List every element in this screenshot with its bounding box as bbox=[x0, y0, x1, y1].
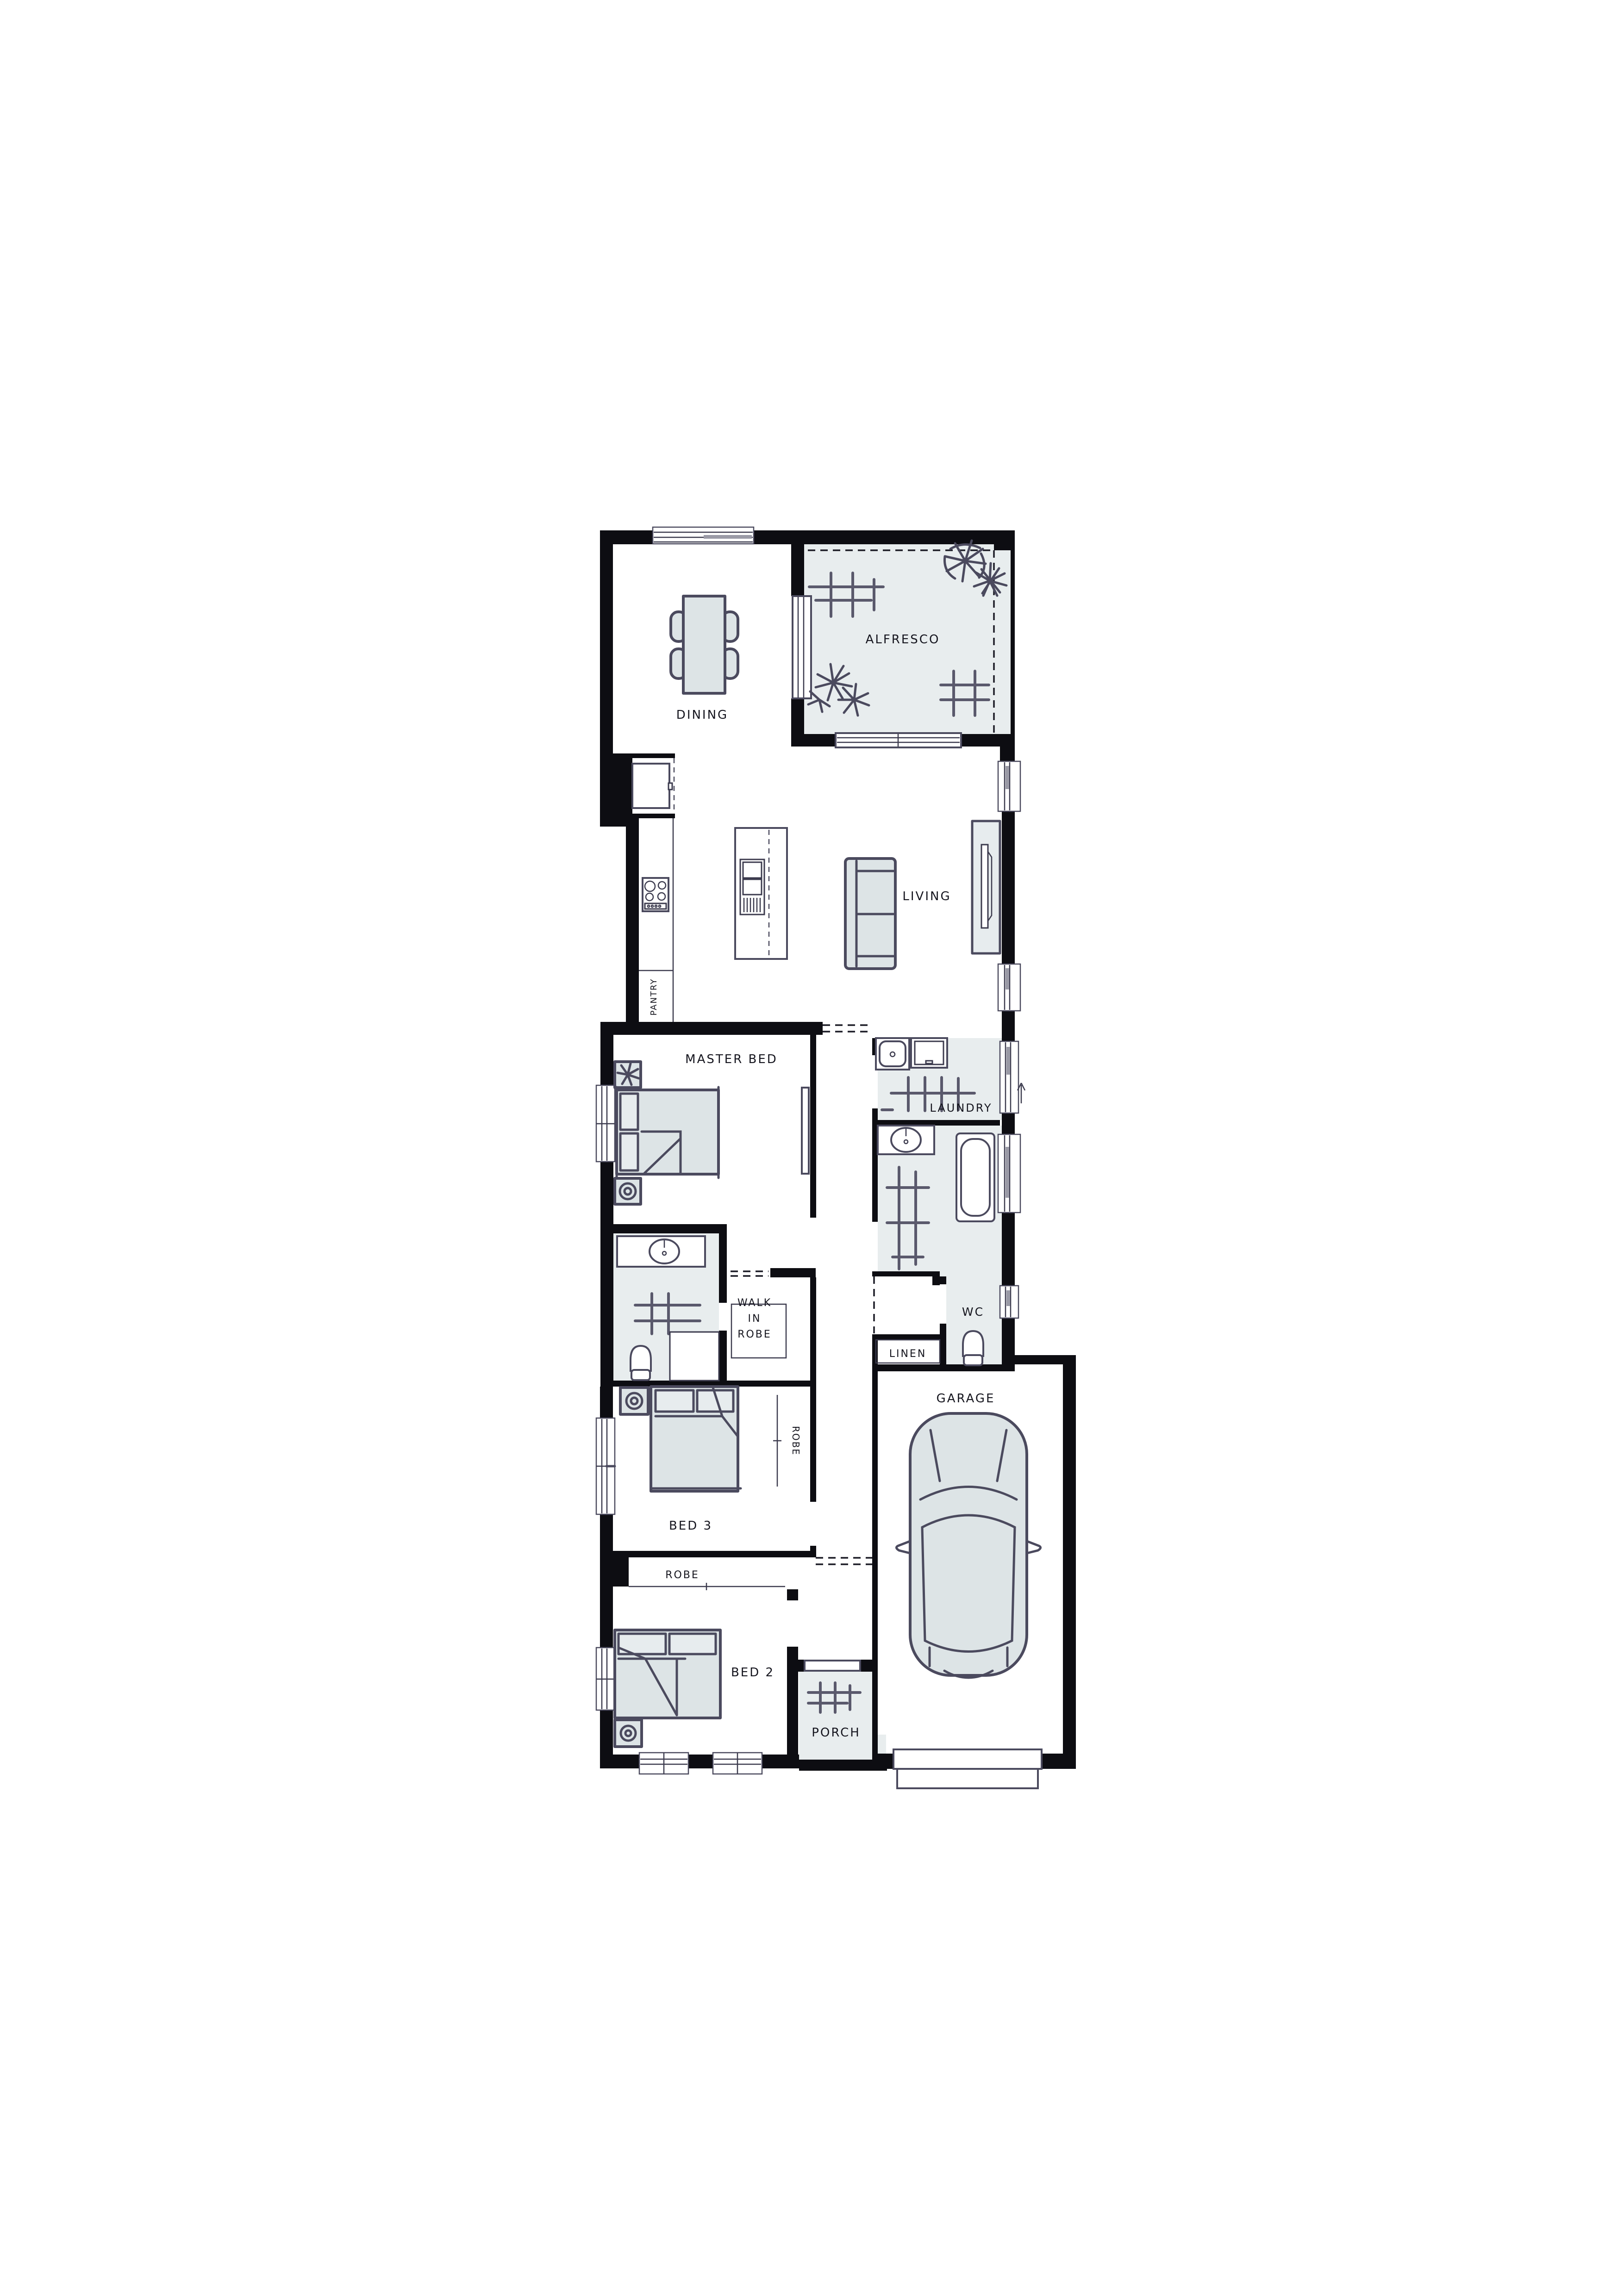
garage-car bbox=[896, 1413, 1040, 1678]
garage-door bbox=[893, 1749, 1042, 1788]
sofa bbox=[845, 859, 895, 969]
label-pantry: PANTRY bbox=[649, 978, 659, 1016]
entry-opening-dash bbox=[816, 1558, 872, 1564]
car-body bbox=[910, 1413, 1027, 1675]
master-furniture bbox=[615, 1062, 718, 1204]
bathtub bbox=[956, 1133, 994, 1221]
fridge bbox=[632, 764, 672, 808]
label-wc: WC bbox=[962, 1305, 984, 1319]
bed2-robe-front bbox=[629, 1583, 785, 1590]
bathroom-window bbox=[998, 1134, 1020, 1213]
bedside-table bbox=[615, 1720, 642, 1747]
master-bed-furniture-bed bbox=[617, 1087, 718, 1178]
wc-window bbox=[1000, 1286, 1018, 1318]
dining-alfresco-sliding-door bbox=[793, 596, 811, 698]
bedside-table bbox=[620, 1388, 648, 1414]
bedside-table bbox=[615, 1178, 641, 1204]
bed3-furniture bbox=[606, 1387, 781, 1491]
pillow bbox=[620, 1133, 638, 1170]
bed2-furniture bbox=[615, 1583, 785, 1747]
label-living: LIVING bbox=[902, 890, 951, 903]
label-porch: PORCH bbox=[812, 1726, 861, 1740]
kitchen-island bbox=[735, 828, 787, 959]
dining-table bbox=[683, 596, 725, 693]
label-bed2: BED 2 bbox=[731, 1666, 775, 1680]
ensuite-toilet bbox=[631, 1346, 651, 1380]
master-wir-opening-dash bbox=[731, 1271, 768, 1276]
pillow bbox=[620, 1094, 638, 1130]
living-window-1 bbox=[998, 761, 1020, 811]
dining-window bbox=[653, 527, 754, 544]
alfresco-stacker-door bbox=[836, 733, 961, 747]
label-wir-line1: WALK bbox=[737, 1297, 772, 1309]
label-master-bed: MASTER BED bbox=[685, 1052, 778, 1066]
label-linen: LINEN bbox=[889, 1348, 927, 1360]
tv-unit bbox=[972, 821, 1000, 953]
dining-furniture bbox=[671, 596, 738, 693]
laundry-window bbox=[1000, 1041, 1018, 1113]
cooktop bbox=[643, 878, 668, 911]
ensuite-shower-screen bbox=[670, 1332, 719, 1381]
washing-machine bbox=[911, 1038, 947, 1068]
living-window-2 bbox=[998, 964, 1020, 1011]
label-alfresco: ALFRESCO bbox=[866, 633, 940, 647]
label-garage: GARAGE bbox=[937, 1392, 995, 1406]
floor-plan-drawing: DINING ALFRESCO LIVING PANTRY MASTER BED… bbox=[0, 0, 1624, 2296]
label-wir-line3: ROBE bbox=[737, 1329, 772, 1340]
entry-door bbox=[805, 1661, 860, 1671]
bed3-robe-front bbox=[773, 1395, 781, 1487]
master-window bbox=[596, 1085, 615, 1162]
label-wir-line2: IN bbox=[748, 1313, 762, 1325]
floor-plan-page: DINING ALFRESCO LIVING PANTRY MASTER BED… bbox=[0, 0, 1624, 2296]
label-robe-bed3: ROBE bbox=[790, 1426, 801, 1456]
laundry-trough bbox=[876, 1038, 909, 1070]
pillow bbox=[669, 1634, 716, 1654]
hall-opening-dash bbox=[823, 1025, 872, 1032]
label-bed3: BED 3 bbox=[669, 1519, 712, 1533]
label-laundry: LAUNDRY bbox=[930, 1101, 992, 1114]
label-robe-bed2: ROBE bbox=[665, 1569, 700, 1581]
wc bbox=[963, 1331, 983, 1365]
master-door-leaf bbox=[802, 1088, 809, 1174]
bed2-window bbox=[596, 1648, 615, 1710]
pillow bbox=[656, 1390, 693, 1412]
label-dining: DINING bbox=[676, 708, 728, 722]
